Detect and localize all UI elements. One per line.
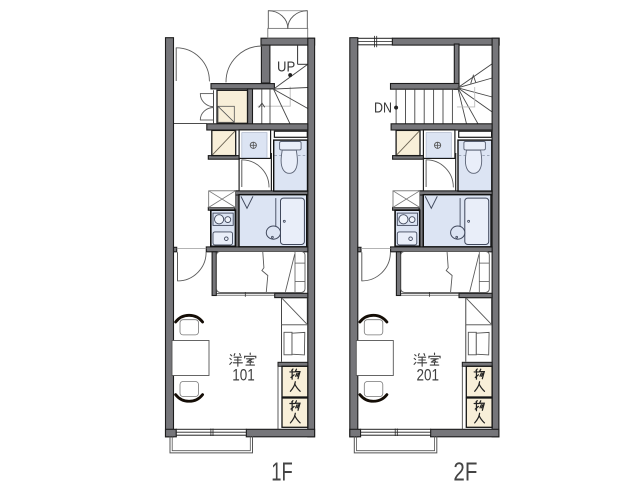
svg-text:DN: DN [374, 101, 392, 117]
svg-text:1F: 1F [271, 458, 293, 486]
svg-text:2F: 2F [453, 458, 477, 486]
svg-text:101: 101 [232, 366, 255, 385]
svg-text:UP: UP [277, 60, 295, 76]
svg-text:201: 201 [417, 366, 440, 385]
